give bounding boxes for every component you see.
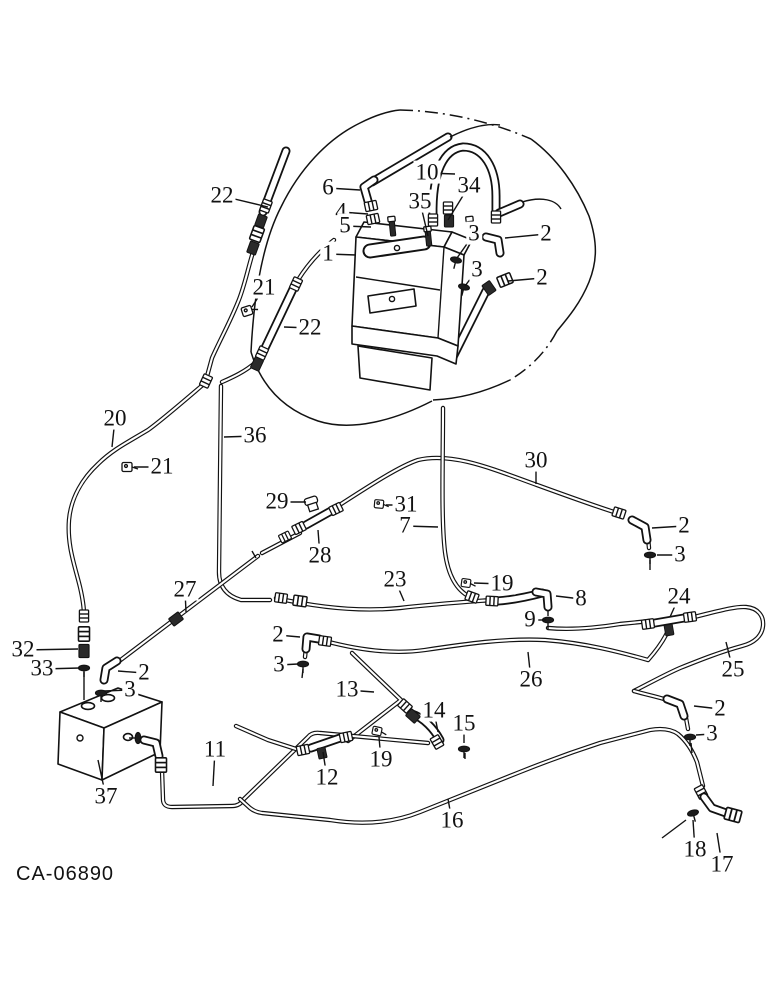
leader-line (341, 212, 368, 214)
figure-code: CA-06890 (16, 863, 114, 886)
leader-lines (0, 0, 772, 1000)
leader-line (185, 590, 186, 612)
leader-line (726, 642, 733, 670)
leader-line (379, 737, 381, 760)
leader-line (448, 186, 469, 220)
leader-line (279, 664, 298, 665)
leader-line (696, 734, 712, 735)
leader-line (284, 327, 310, 328)
leader-line (347, 690, 374, 692)
leader-line (405, 526, 438, 527)
leader-line (278, 635, 300, 637)
leader-line (652, 526, 684, 528)
leader-line (104, 690, 130, 691)
leader-line (457, 234, 474, 258)
leader-line (112, 419, 115, 447)
leader-line (42, 668, 80, 669)
leader-line (98, 760, 106, 797)
leader-line (222, 196, 268, 207)
leader-line (420, 202, 428, 236)
leader-line (693, 820, 695, 850)
leader-line (213, 750, 215, 786)
leader-line (528, 652, 531, 680)
leader-line (23, 649, 78, 650)
leader-line (434, 711, 438, 732)
leader-line (474, 583, 502, 584)
leader-line (505, 234, 546, 238)
leader-line (508, 278, 542, 281)
leader-line (118, 671, 144, 673)
parts-diagram-page: 2261034354513232212220362130293172823272… (0, 0, 772, 1000)
leader-line (556, 596, 581, 599)
leader-line (328, 254, 356, 255)
leader-line (717, 833, 722, 865)
leader-line (670, 597, 679, 617)
leader-line (395, 580, 404, 601)
leader-line (465, 270, 477, 286)
leader-line (323, 752, 327, 778)
leader-line (345, 226, 371, 227)
leader-line (328, 188, 360, 190)
leader-line (448, 799, 452, 821)
leader-line (694, 706, 720, 709)
leader-line (224, 436, 255, 437)
leader-line (318, 530, 320, 556)
leader-line (252, 288, 264, 307)
leader-line (427, 173, 455, 174)
